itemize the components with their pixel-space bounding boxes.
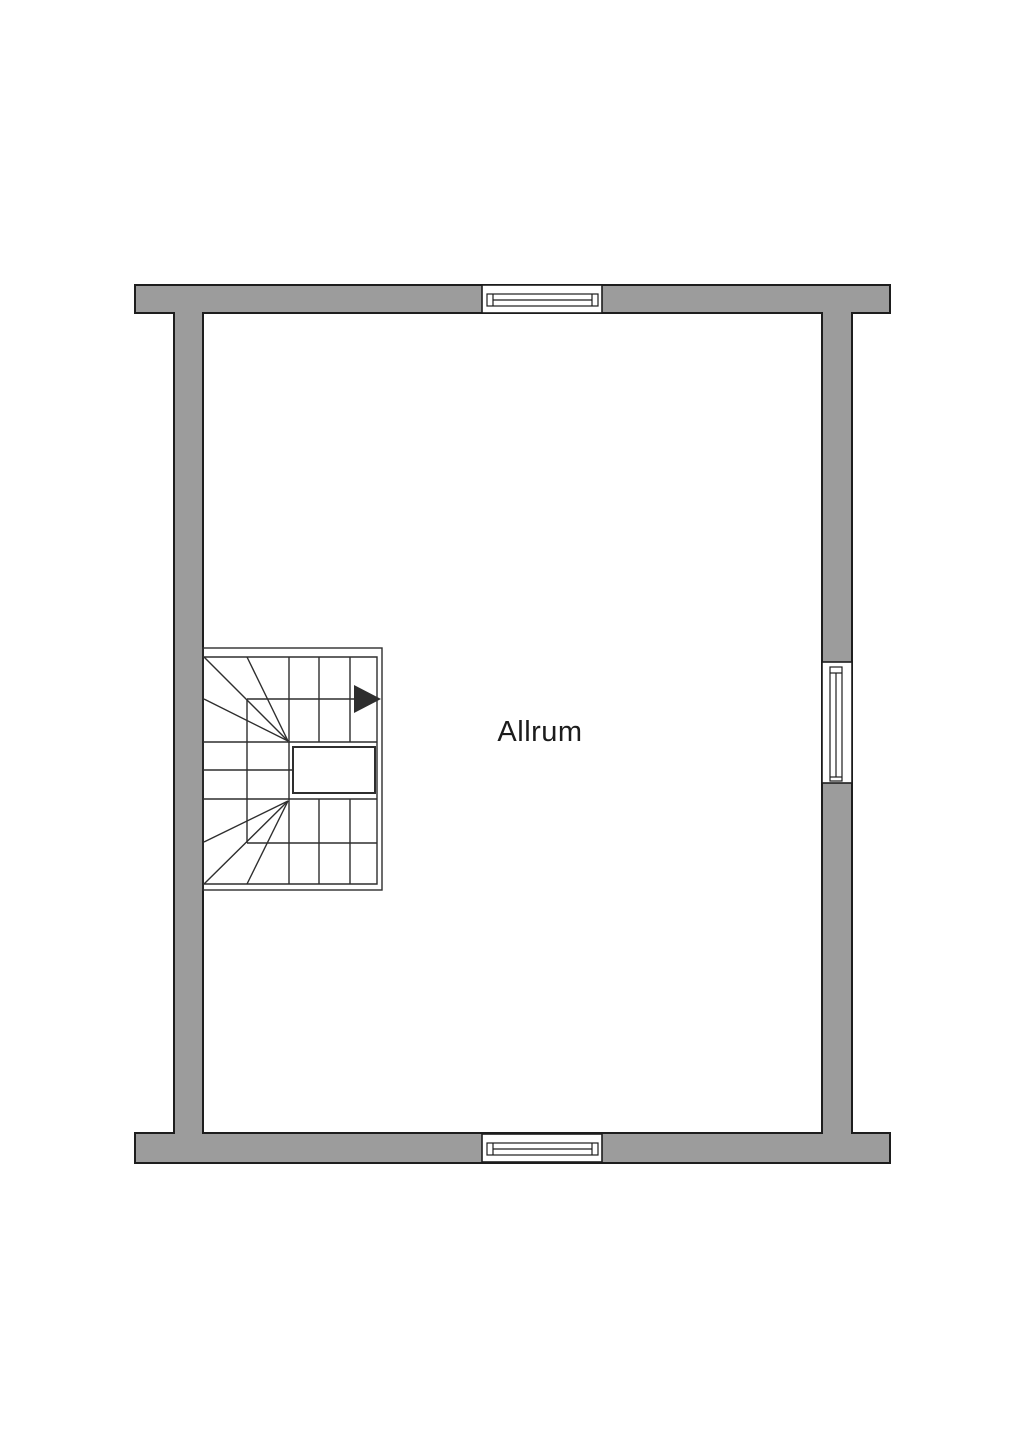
bottom-wall-window: [482, 1134, 602, 1162]
top-wall-window: [482, 285, 602, 313]
winder-line: [204, 699, 288, 741]
winder-line: [204, 801, 288, 842]
stair-landing: [293, 747, 375, 793]
right-wall-window: [822, 662, 852, 783]
room-label: Allrum: [497, 716, 582, 748]
floor-plan-canvas: Allrum: [0, 0, 1024, 1448]
staircase: [203, 648, 382, 890]
